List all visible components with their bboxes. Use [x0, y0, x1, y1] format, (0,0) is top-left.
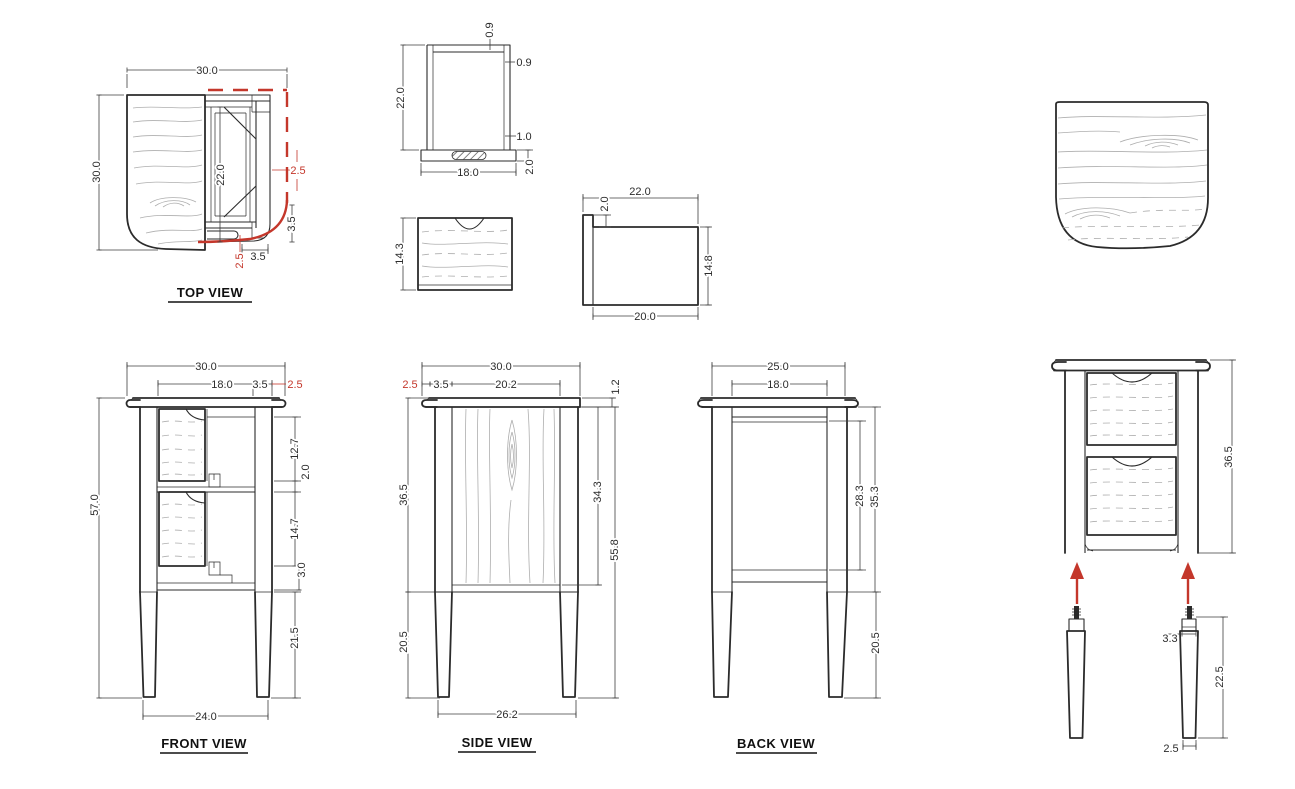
dim-side-overhang: 2.5 [402, 379, 417, 391]
drawer-front-panel-view: 14.3 [394, 218, 512, 290]
technical-drawing-canvas: 30.0 30.0 22.0 2.5 3.5 2.5 3.5 TOP VIEW … [0, 0, 1295, 789]
dim-side-body-height: 36.5 [398, 484, 410, 505]
dim-front-overall-width: 30.0 [195, 361, 216, 373]
dim-assembly-foot: 2.5 [1163, 743, 1178, 755]
front-leg-left [140, 592, 157, 697]
dim-front-overhang: 2.5 [287, 379, 302, 391]
back-view: 25.0 18.0 28.3 35.3 20.5 BACK VIEW [698, 361, 882, 753]
top-view-drawer-slot [207, 231, 238, 239]
dim-top-front-overhang: 2.5 [234, 253, 246, 268]
detached-leg-right [1180, 606, 1198, 738]
dim-assembly-tenon: 3.3 [1162, 633, 1177, 645]
dim-frame-width: 18.0 [457, 167, 478, 179]
top-view-wood-half [127, 95, 205, 250]
dim-frame-bottom-rail: 1.0 [516, 131, 531, 143]
red-up-arrow-icon [1181, 562, 1195, 604]
dim-front-lower-opening: 14.7 [289, 518, 301, 539]
back-leg-right [827, 592, 847, 697]
dim-side-leg-height: 20.5 [398, 631, 410, 652]
dim-assembly-leg-length: 22.5 [1214, 666, 1226, 687]
front-view-label: FRONT VIEW [161, 736, 247, 751]
dim-side-leg-span: 26.2 [496, 709, 517, 721]
dim-front-leg-height: 21.5 [289, 627, 301, 648]
back-view-label: BACK VIEW [737, 736, 815, 751]
side-view: 30.0 2.5 3.5 20.2 1.2 36.5 34.3 55.8 20.… [398, 361, 622, 752]
assembly-view: 36.5 3.3 22.5 2.5 [1052, 360, 1236, 755]
dim-back-panel-width: 18.0 [767, 379, 788, 391]
dim-front-overall-height: 57.0 [89, 494, 101, 515]
dim-top-front-frame: 3.5 [250, 251, 265, 263]
dim-top-overall-depth: 30.0 [91, 161, 103, 182]
dim-side-leg-depth: 3.5 [433, 379, 448, 391]
dim-front-leg-span: 24.0 [195, 711, 216, 723]
dim-side-top-thickness: 1.2 [610, 379, 622, 394]
top-view: 30.0 30.0 22.0 2.5 3.5 2.5 3.5 TOP VIEW [91, 65, 306, 302]
frame-detail-view: 22.0 0.9 0.9 1.0 2.0 18.0 [395, 22, 536, 179]
dim-front-mid-rail: 2.0 [300, 464, 312, 479]
back-leg-left [712, 592, 732, 697]
red-up-arrow-icon [1070, 562, 1084, 604]
front-drawer-upper [159, 409, 205, 481]
drawing-sheet: 30.0 30.0 22.0 2.5 3.5 2.5 3.5 TOP VIEW … [0, 0, 1295, 789]
front-drawer-lower [159, 492, 205, 566]
front-leg-right [255, 592, 272, 697]
dim-assembly-body-height: 36.5 [1223, 446, 1235, 467]
side-leg-back [560, 592, 578, 697]
dim-drawer-front-height: 14.3 [394, 243, 406, 264]
dim-frame-top-rail: 0.9 [484, 22, 496, 37]
side-leg-front [435, 592, 452, 697]
dim-top-overall-width: 30.0 [196, 65, 217, 77]
front-view: 30.0 18.0 3.5 2.5 57.0 12.7 2.0 14.7 3.0… [89, 361, 312, 753]
dim-side-under-top: 55.8 [609, 539, 621, 560]
dim-drawer-side-length: 22.0 [629, 186, 650, 198]
dim-frame-stile: 0.9 [516, 57, 531, 69]
dim-drawer-side-lip: 2.0 [599, 196, 611, 211]
dim-back-leg-height: 20.5 [870, 632, 882, 653]
top-view-red-corner-curve [198, 200, 287, 242]
dim-top-opening-depth: 22.0 [215, 164, 227, 185]
tabletop-plan-view [1056, 102, 1208, 248]
dim-front-leg-width: 3.5 [252, 379, 267, 391]
dim-top-side-overhang: 2.5 [290, 165, 305, 177]
dim-drawer-side-height: 14.8 [703, 255, 715, 276]
dim-side-panel-height: 34.3 [592, 481, 604, 502]
side-view-label: SIDE VIEW [462, 735, 533, 750]
assembly-drawer-lower [1087, 457, 1176, 535]
assembly-drawer-upper [1087, 373, 1176, 445]
frame-hatched-block [452, 152, 486, 160]
dim-front-upper-opening: 12.7 [289, 438, 301, 459]
dim-side-panel-depth: 20.2 [495, 379, 516, 391]
dim-back-body-height: 35.3 [869, 486, 881, 507]
dim-back-panel-height: 28.3 [854, 485, 866, 506]
drawer-side-panel-view: 22.0 2.0 14.8 20.0 [583, 186, 715, 323]
dim-frame-height: 22.0 [395, 87, 407, 108]
drawer-side-panel [583, 215, 698, 305]
dim-back-overall-width: 25.0 [767, 361, 788, 373]
dim-drawer-side-body-length: 20.0 [634, 311, 655, 323]
dim-front-opening-width: 18.0 [211, 379, 232, 391]
top-view-label: TOP VIEW [177, 285, 244, 300]
drawer-front-notch [455, 218, 484, 229]
detached-leg-left [1067, 606, 1085, 738]
dim-side-overall-depth: 30.0 [490, 361, 511, 373]
dim-top-side-frame: 3.5 [286, 216, 298, 231]
dim-front-bottom-rail: 3.0 [296, 562, 308, 577]
dim-frame-base: 2.0 [524, 159, 536, 174]
